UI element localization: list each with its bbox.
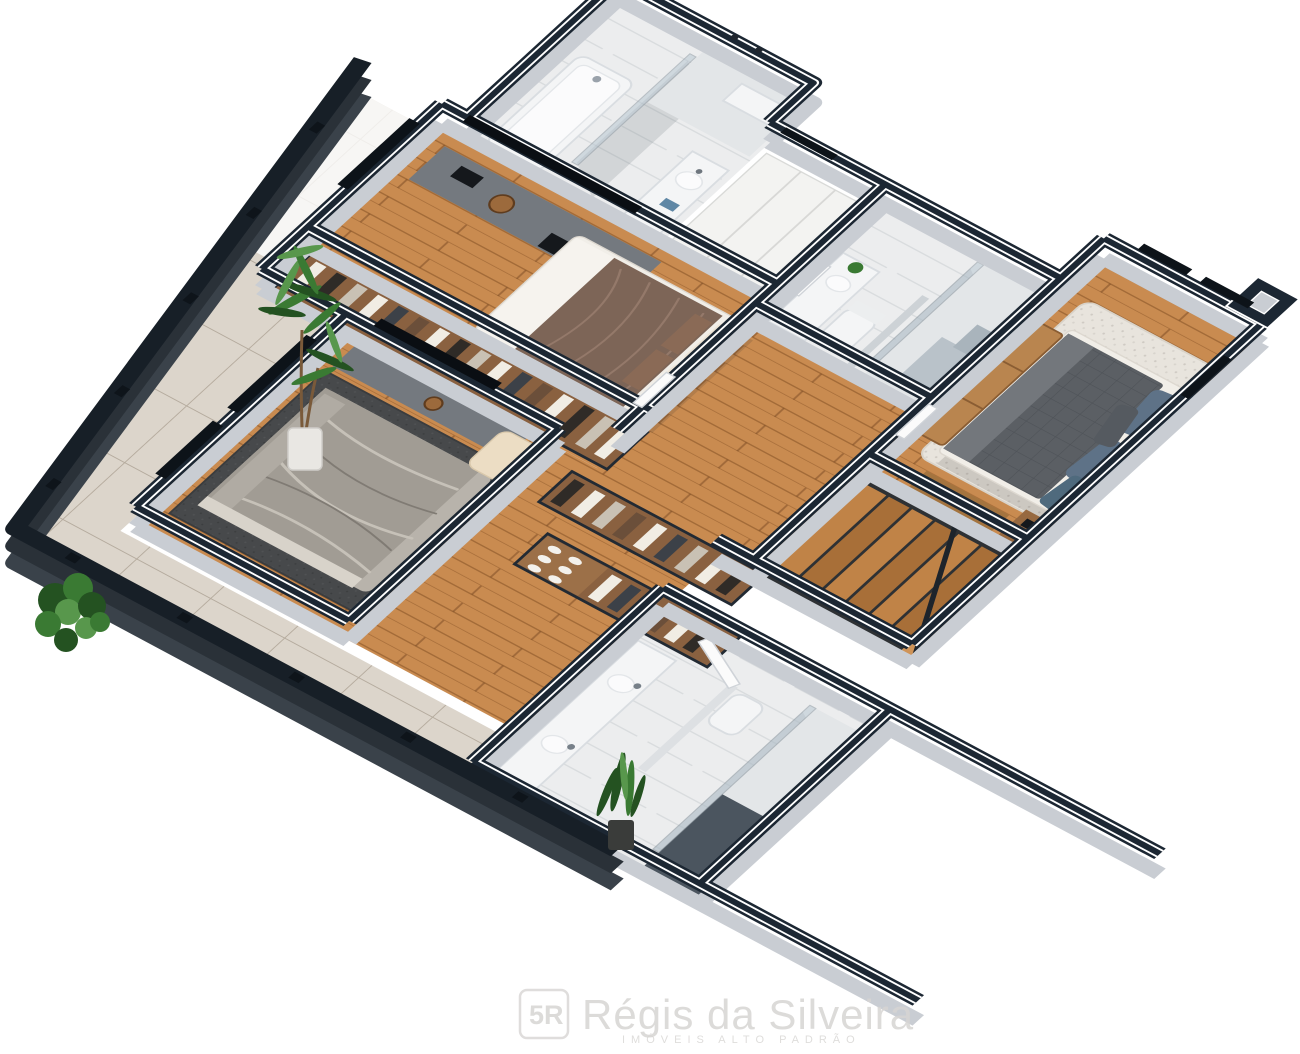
- watermark-logo-letters: 5R: [529, 1000, 564, 1030]
- snake-plant-pot: [608, 820, 634, 850]
- watermark-title: Régis da Silveira: [582, 991, 914, 1038]
- watermark: 5R Régis da Silveira IMÓVEIS ALTO PADRÃO: [520, 990, 914, 1046]
- watermark-subtitle: IMÓVEIS ALTO PADRÃO: [622, 1033, 861, 1046]
- plant-pot: [288, 428, 322, 470]
- iso-scene: [0, 0, 1300, 1054]
- floor-plan-svg: 5R Régis da Silveira IMÓVEIS ALTO PADRÃO: [0, 0, 1300, 1054]
- floor-plan-render: 5R Régis da Silveira IMÓVEIS ALTO PADRÃO: [0, 0, 1300, 1054]
